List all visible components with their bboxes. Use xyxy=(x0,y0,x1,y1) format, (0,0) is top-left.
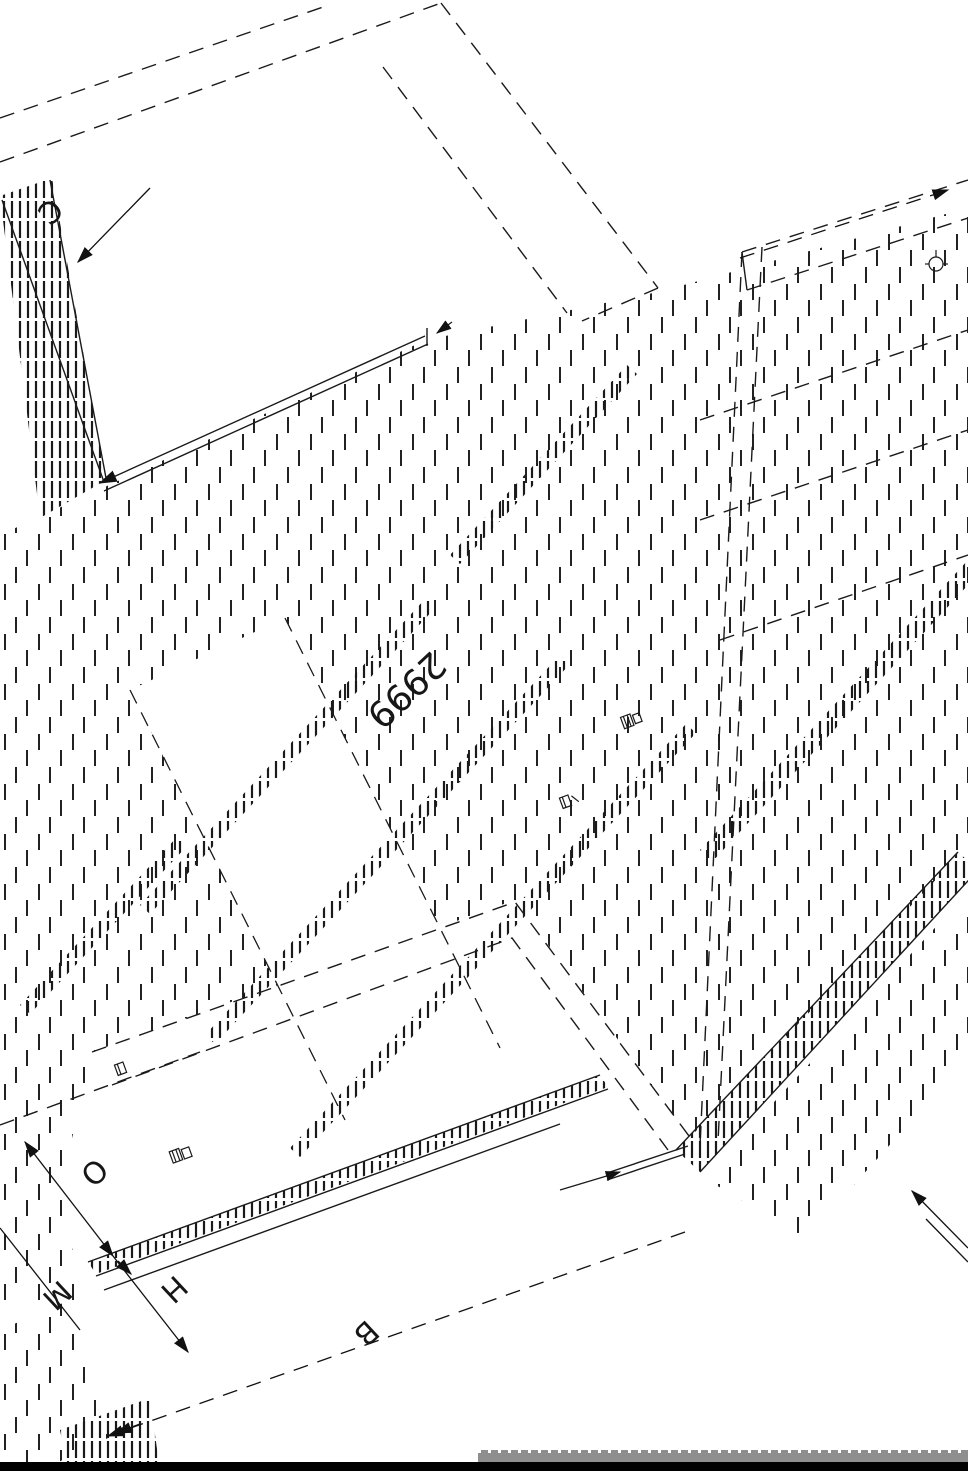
drawing-page: 2999 C O M H B xyxy=(0,0,968,1471)
title-block-gray-strip[interactable] xyxy=(478,1450,968,1463)
technical-drawing: 2999 C O M H B xyxy=(0,0,968,1471)
bottom-border-bar xyxy=(0,1462,968,1471)
